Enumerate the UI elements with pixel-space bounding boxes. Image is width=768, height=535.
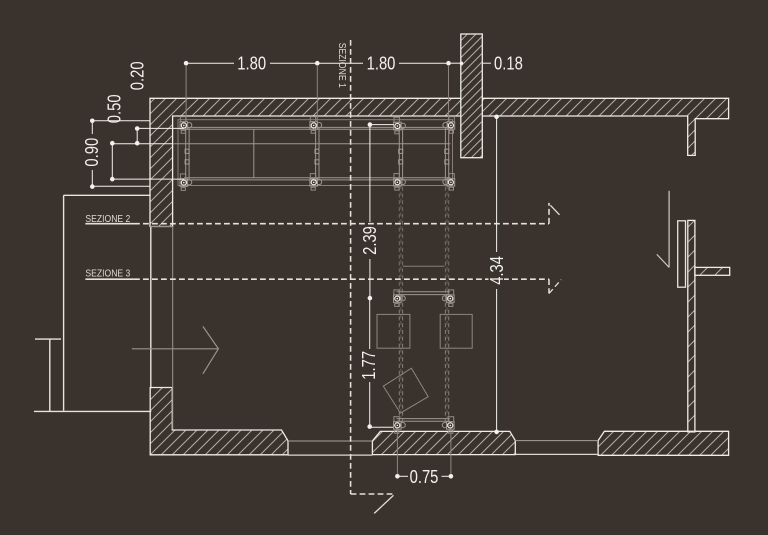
svg-text:0.20: 0.20 <box>127 61 148 90</box>
svg-text:2.39: 2.39 <box>359 226 380 255</box>
svg-text:0.18: 0.18 <box>494 53 523 74</box>
svg-text:0.90: 0.90 <box>82 138 103 167</box>
svg-text:1.80: 1.80 <box>367 53 396 74</box>
svg-text:SEZIONE 2: SEZIONE 2 <box>85 213 130 225</box>
svg-text:0.50: 0.50 <box>104 94 125 123</box>
svg-text:SEZIONE 1: SEZIONE 1 <box>336 43 348 88</box>
svg-text:1.77: 1.77 <box>358 351 379 380</box>
svg-text:SEZIONE 3: SEZIONE 3 <box>85 268 130 280</box>
svg-text:1.80: 1.80 <box>237 53 266 74</box>
svg-text:0.75: 0.75 <box>410 466 439 487</box>
svg-text:4.34: 4.34 <box>487 256 508 285</box>
